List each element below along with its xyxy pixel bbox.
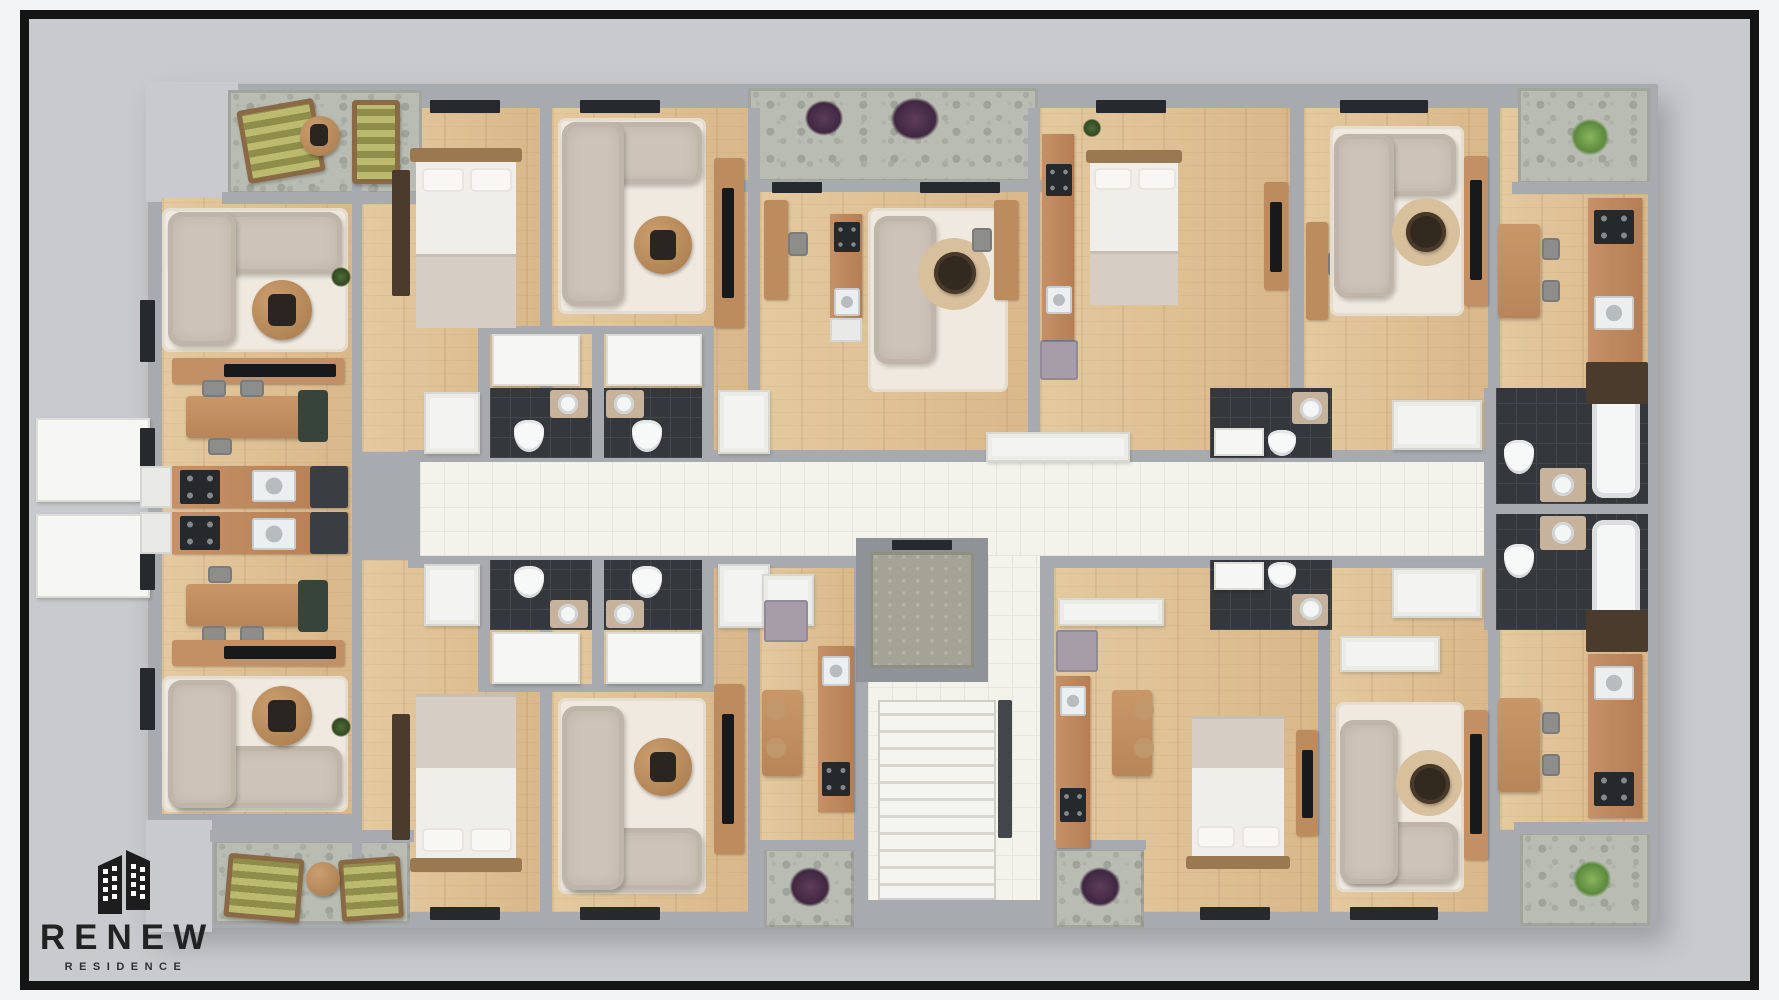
bed-headboard: [410, 148, 522, 162]
window: [1096, 100, 1166, 113]
chair: [1542, 712, 1560, 734]
coffee-table-dark: [934, 252, 976, 294]
kitchen-cabinet: [830, 318, 862, 342]
kitchen-sink: [822, 656, 850, 686]
elevator-door: [892, 540, 952, 550]
window: [772, 182, 822, 193]
plant-pot: [1080, 116, 1104, 140]
shower: [1214, 562, 1264, 590]
stool: [766, 700, 786, 720]
floor-plan: [0, 0, 1779, 1000]
kitchen-sink: [252, 470, 296, 502]
wardrobe: [1392, 568, 1482, 618]
wall-balcony-bl: [210, 830, 414, 842]
wardrobe: [1392, 400, 1482, 450]
shower: [492, 632, 580, 684]
sofa-corner: [562, 122, 624, 306]
wall-balcony-br: [1514, 822, 1654, 834]
sink-round: [1552, 522, 1574, 544]
chair: [208, 438, 232, 455]
wall-bath-divider: [592, 560, 604, 684]
stool: [1134, 738, 1154, 758]
tray: [268, 294, 296, 326]
sink-round: [1300, 398, 1322, 420]
sink-round: [614, 394, 634, 414]
dining-table: [1498, 698, 1540, 792]
chair: [208, 566, 232, 583]
stove: [1594, 210, 1634, 244]
fridge: [764, 600, 808, 642]
terrace-slab: [36, 418, 150, 502]
desk: [1306, 222, 1328, 320]
sofa-corner: [562, 706, 624, 890]
sofa-corner: [168, 680, 236, 808]
tv: [1470, 180, 1482, 280]
bed-pillow: [1242, 826, 1280, 848]
window: [1350, 907, 1438, 920]
stove: [1594, 772, 1634, 806]
tv: [722, 188, 734, 298]
logo-title: RENEW: [30, 918, 216, 958]
fridge: [1056, 630, 1098, 672]
stove: [834, 222, 860, 252]
shower: [606, 632, 702, 684]
lounger: [338, 856, 404, 922]
bed-pillow: [470, 828, 512, 852]
wall-bath2-right: [702, 560, 714, 690]
plant-pot: [798, 94, 850, 142]
wardrobe: [424, 392, 480, 454]
bench: [298, 580, 328, 632]
kitchen-cabinet-dark: [1586, 610, 1648, 652]
bed-pillow: [422, 828, 464, 852]
bed-blanket: [1090, 251, 1178, 305]
fridge: [310, 512, 348, 554]
stove: [1060, 788, 1086, 822]
stool: [766, 738, 786, 758]
chair: [1542, 238, 1560, 260]
kitchen-sink: [1594, 296, 1634, 330]
desk: [994, 200, 1018, 300]
plant-pot: [328, 714, 354, 740]
tv: [1270, 202, 1282, 272]
wall-stair-bottom: [854, 900, 1054, 918]
bed-blanket: [416, 254, 516, 328]
sofa-corner: [1340, 720, 1398, 884]
coffee-table-dark: [1410, 764, 1450, 804]
stair-railing: [998, 700, 1012, 838]
wardrobe: [986, 432, 1130, 462]
tv: [1470, 734, 1482, 834]
elevator-car: [870, 552, 974, 668]
wall-corridor-left-end: [408, 450, 420, 568]
plant-pot: [1564, 112, 1616, 162]
logo-buildings-icon: [84, 842, 162, 914]
window: [1200, 907, 1270, 920]
plant-pot: [328, 264, 354, 290]
wall-stair-right: [1040, 556, 1054, 920]
bed-pillow: [1138, 168, 1176, 190]
wall-corridor-right-end: [1484, 388, 1496, 630]
tv: [224, 364, 336, 377]
tray: [310, 124, 328, 146]
window: [1340, 100, 1428, 113]
bed-headboard: [1086, 150, 1182, 163]
plant-pot: [782, 860, 838, 914]
terrace-slab: [36, 514, 150, 598]
bed-blanket: [1192, 716, 1284, 768]
desk: [764, 200, 788, 300]
sofa-corner: [1334, 134, 1394, 298]
wall-bath2-bottom: [478, 684, 714, 692]
sink-round: [558, 604, 578, 624]
dresser: [392, 170, 410, 296]
shower: [606, 334, 702, 386]
window: [140, 300, 155, 362]
chair: [972, 228, 992, 252]
plant-pot: [1566, 854, 1618, 904]
logo: RENEW RESIDENCE: [30, 842, 216, 973]
stove: [180, 516, 220, 550]
window: [430, 907, 500, 920]
wall-d-e: [1028, 108, 1040, 452]
bench: [298, 390, 328, 442]
dresser: [392, 714, 410, 840]
wardrobe: [718, 390, 770, 454]
wall-bath-divider: [592, 334, 604, 458]
wall-bathr-divider: [1496, 504, 1648, 514]
shower: [492, 334, 580, 386]
bed-headboard: [410, 858, 522, 872]
bathtub: [1592, 520, 1640, 624]
tv: [722, 714, 734, 824]
tv: [224, 646, 336, 659]
window: [580, 100, 660, 113]
fridge: [310, 466, 348, 508]
stove: [180, 470, 220, 504]
bed-pillow: [422, 168, 464, 192]
kitchen-cabinet-dark: [1586, 362, 1648, 404]
tv: [1302, 750, 1313, 818]
bed-pillow: [1197, 826, 1235, 848]
sink-round: [1552, 474, 1574, 496]
sink-round: [1300, 598, 1322, 620]
wardrobe: [1340, 636, 1440, 672]
wardrobe: [1058, 598, 1164, 626]
bed-headboard: [1186, 856, 1290, 869]
window: [920, 182, 1000, 193]
chair: [788, 232, 808, 256]
kitchen-cabinet: [140, 512, 172, 554]
plant-pot: [882, 90, 948, 148]
window: [580, 907, 660, 920]
kitchen-cabinet: [140, 466, 172, 508]
bed-pillow: [470, 168, 512, 192]
wall-bath-right: [702, 326, 714, 458]
chair: [1542, 754, 1560, 776]
kitchen-sink: [834, 288, 860, 316]
wall-balcony-tr: [1512, 182, 1652, 194]
plant-pot: [1072, 860, 1128, 914]
stool: [1134, 700, 1154, 720]
kitchen-sink: [1060, 686, 1086, 716]
stove: [1046, 164, 1072, 196]
bathtub: [1592, 394, 1640, 498]
chair: [202, 380, 226, 397]
kitchen-sink: [252, 518, 296, 550]
stove: [822, 762, 850, 796]
chair: [1542, 280, 1560, 302]
lounger: [223, 853, 304, 923]
staircase: [878, 700, 996, 900]
bed-pillow: [1094, 168, 1132, 190]
fridge: [1040, 340, 1078, 380]
sink-round: [614, 604, 634, 624]
notch-top-left: [146, 82, 238, 202]
kitchen-sink: [1594, 666, 1634, 700]
tray: [650, 230, 676, 260]
window: [140, 668, 155, 730]
wall-balcony-bcl: [760, 840, 856, 850]
window: [430, 100, 500, 113]
dining-table: [1498, 224, 1540, 318]
sofa-corner: [168, 212, 236, 346]
logo-subtitle: RESIDENCE: [30, 961, 216, 973]
shower: [1214, 428, 1264, 456]
bed-blanket: [416, 694, 516, 768]
coffee-table-dark: [1406, 212, 1446, 252]
chair: [240, 380, 264, 397]
wardrobe: [424, 564, 480, 626]
tray: [268, 700, 296, 732]
sink-round: [558, 394, 578, 414]
tray: [650, 752, 676, 782]
kitchen-sink: [1046, 286, 1072, 314]
balcony-table: [306, 862, 340, 896]
